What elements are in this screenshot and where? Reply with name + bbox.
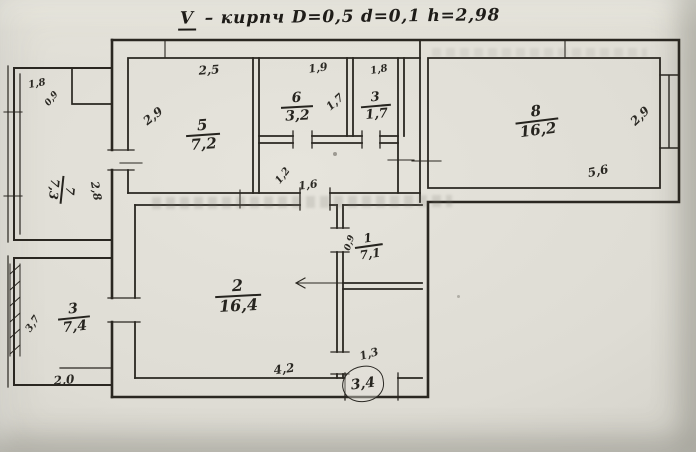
dimension-label: 2,9: [140, 104, 165, 128]
room-label: 17,1: [353, 230, 385, 262]
dimension-label: 2,8: [88, 180, 104, 201]
entrance-value: 3,4: [350, 375, 376, 394]
room-label: 77,3: [47, 174, 78, 205]
dimension-label: 1,6: [298, 177, 319, 193]
room-label: 31,7: [360, 90, 393, 123]
room-label: 37,4: [56, 300, 91, 335]
dimension-label: 2,0: [53, 372, 75, 388]
dimension-label: 2,9: [628, 104, 653, 129]
room-label: 816,2: [513, 101, 560, 140]
dimension-label: 5,6: [586, 162, 609, 180]
dimension-label: 0,9: [43, 90, 61, 109]
room-label: 216,4: [214, 277, 261, 315]
scanned-floorplan-page: { "document": { "title": { "numeral": "V…: [0, 0, 696, 452]
dimension-label: 1,3: [358, 345, 380, 363]
dimension-label: 2,5: [198, 62, 220, 77]
dimension-label: 1,2: [273, 166, 292, 186]
dimension-label: 4,2: [273, 361, 296, 378]
dimension-label: 1,7: [324, 91, 347, 113]
dimension-label: 1,9: [308, 60, 329, 76]
room-label: 57,2: [185, 117, 221, 153]
dimension-label: 3,7: [24, 314, 43, 335]
dimension-label: 1,8: [27, 77, 46, 91]
room-label: 63,2: [280, 90, 314, 124]
dimension-label: 1,8: [369, 63, 388, 77]
